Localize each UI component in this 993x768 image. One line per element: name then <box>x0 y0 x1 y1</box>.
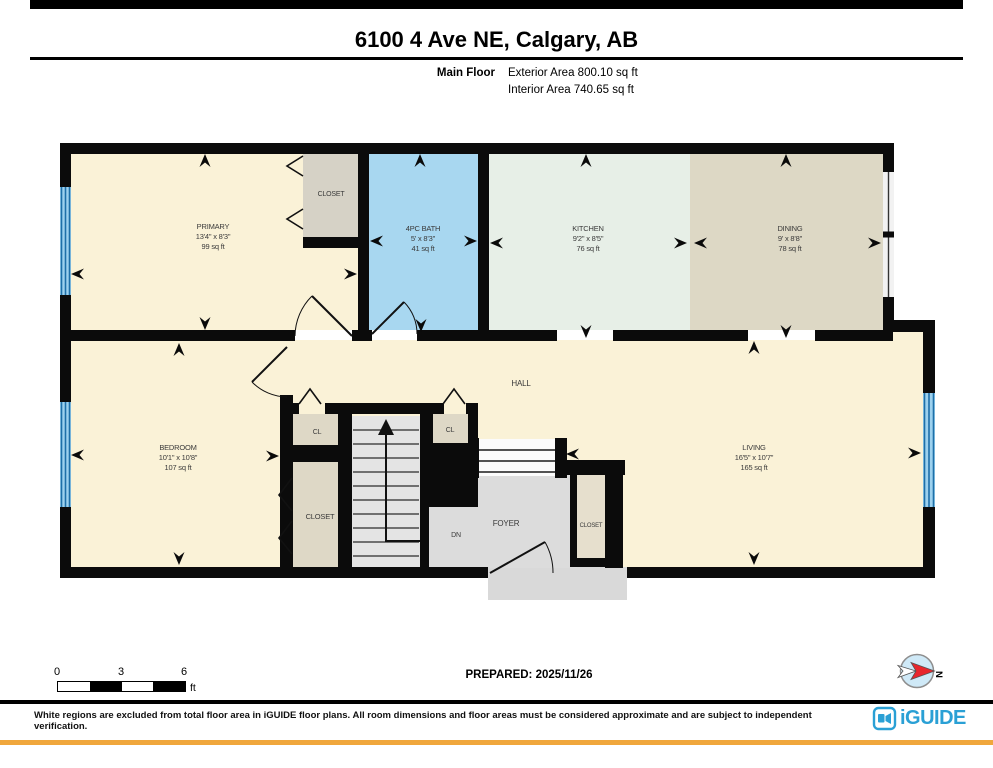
scale-segment <box>153 682 185 691</box>
entry-stoop <box>488 567 627 600</box>
wall <box>570 558 623 567</box>
floor-plan: PRIMARY13'4" x 8'3"99 sq ft4PC BATH5' x … <box>0 0 993 768</box>
footer-divider <box>0 700 993 704</box>
iguide-logo: iGUIDE <box>872 706 966 731</box>
foyer-floor-strip <box>429 507 443 568</box>
wall <box>475 438 479 478</box>
wall <box>352 330 372 341</box>
room-dims-living: 16'5" x 10'7" <box>735 453 774 462</box>
foyer-steps-floor <box>478 439 555 476</box>
room-name-bedroom: BEDROOM <box>159 443 196 452</box>
room-area-bedroom: 107 sq ft <box>165 463 193 472</box>
wall <box>478 143 489 340</box>
wall <box>293 403 299 414</box>
iguide-logo-icon <box>872 706 897 731</box>
dining-window-divider <box>883 232 894 238</box>
wall <box>555 438 567 478</box>
scale-segment <box>58 682 90 691</box>
wall <box>60 567 488 578</box>
room-area-kitchen: 76 sq ft <box>577 244 601 253</box>
scale-unit-label: ft <box>190 682 196 694</box>
top-border-bar <box>30 0 963 9</box>
page-title: 6100 4 Ave NE, Calgary, AB <box>0 27 993 53</box>
room-dims-kitchen: 9'2" x 8'5" <box>573 234 604 243</box>
iguide-logo-text: iGUIDE <box>900 707 966 730</box>
floor-plan-page: PRIMARY13'4" x 8'3"99 sq ft4PC BATH5' x … <box>0 0 993 768</box>
wall <box>815 330 893 341</box>
room-dims-bedroom: 10'1" x 10'8" <box>159 453 198 462</box>
bedroom-closet-label: CLOSET <box>306 512 335 521</box>
primary-closet-label: CLOSET <box>318 191 346 198</box>
room-dims-dining: 9' x 8'8" <box>778 234 803 243</box>
living-floor-notch <box>893 332 923 342</box>
hall-label: HALL <box>511 379 531 388</box>
wall <box>420 505 429 568</box>
room-dims-bath: 5' x 8'3" <box>411 234 436 243</box>
cl-left-label: CL <box>313 429 322 436</box>
scale-segment <box>90 682 122 691</box>
room-area-living: 165 sq ft <box>741 463 769 472</box>
prepared-date: PREPARED: 2025/11/26 <box>466 669 593 681</box>
scale-tick-3: 3 <box>118 666 124 678</box>
room-dims-primary: 13'4" x 8'3" <box>196 232 231 241</box>
wall <box>303 237 359 248</box>
interior-area-label: Interior Area 740.65 sq ft <box>508 84 634 96</box>
foyer-closet-floor <box>577 475 605 559</box>
bottom-accent-bar <box>0 740 993 745</box>
room-area-bath: 41 sq ft <box>412 244 436 253</box>
room-area-dining: 78 sq ft <box>779 244 803 253</box>
compass-north-label: N <box>933 671 944 678</box>
scale-tick-6: 6 <box>181 666 187 678</box>
wall <box>338 405 352 568</box>
scale-tick-0: 0 <box>54 666 60 678</box>
disclaimer-text: White regions are excluded from total fl… <box>34 710 864 732</box>
wall <box>420 443 478 507</box>
cl-right-label: CL <box>446 427 455 434</box>
wall <box>613 330 748 341</box>
floor-name-label: Main Floor <box>437 67 495 79</box>
foyer-closet-label: CLOSET <box>580 523 603 529</box>
wall <box>605 461 623 568</box>
wall <box>570 472 577 563</box>
room-name-living: LIVING <box>742 443 766 452</box>
room-name-bath: 4PC BATH <box>406 224 441 233</box>
stairs-down-label: DN <box>451 532 461 539</box>
title-divider <box>30 57 963 60</box>
room-area-primary: 99 sq ft <box>202 242 226 251</box>
room-name-kitchen: KITCHEN <box>572 224 604 233</box>
wall <box>358 143 369 340</box>
compass: N <box>883 648 953 694</box>
exterior-area-label: Exterior Area 800.10 sq ft <box>508 67 638 79</box>
foyer-label: FOYER <box>493 519 520 528</box>
wall <box>417 330 557 341</box>
scale-bar <box>57 681 186 692</box>
room-name-dining: DINING <box>777 224 802 233</box>
scale-segment <box>122 682 154 691</box>
room-name-primary: PRIMARY <box>197 222 230 231</box>
wall <box>60 143 893 154</box>
wall <box>627 567 935 578</box>
wall <box>60 330 295 341</box>
